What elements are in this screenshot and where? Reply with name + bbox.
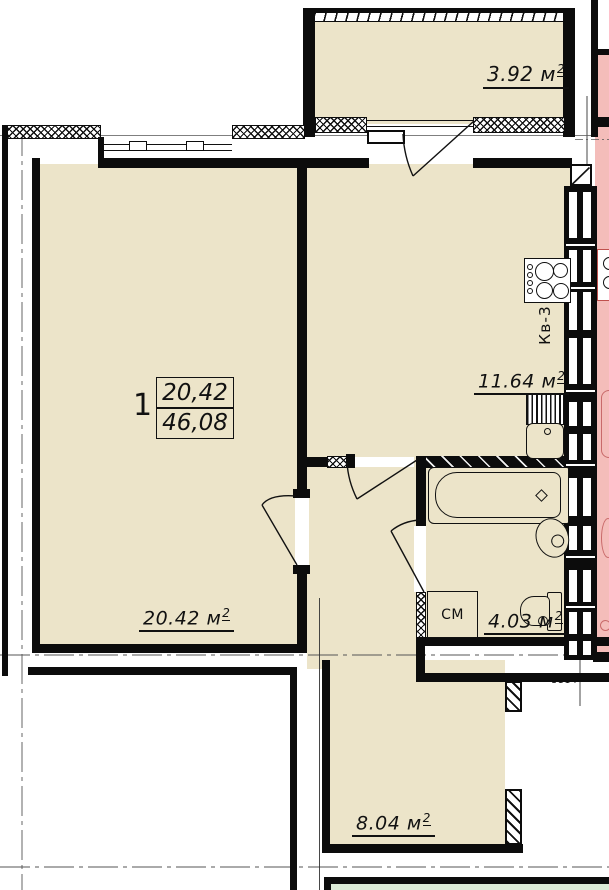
window-line [100,150,232,151]
adjacent-bathtub-hint [601,390,609,458]
door-opening [353,457,414,467]
wall-hatched [305,13,573,22]
living-area-value: 20,42 [157,378,233,409]
vent-symbol [570,164,592,186]
area-unit: м [206,607,221,629]
apartment-ref-value: Кв-3 [536,305,554,345]
total-area-value: 46,08 [157,409,233,437]
area-value: 3.92 [487,62,534,86]
kitchen-counter [526,394,564,425]
window-mullion [186,141,204,151]
door-jamb [293,489,310,498]
wall-adjacent [28,667,297,675]
area-value: 8.04 [356,812,400,834]
window-sill [367,130,405,144]
wall [297,566,307,653]
area-sup: 2 [423,811,431,826]
wall-hatched [2,125,101,139]
adjacent-toilet-hint [600,620,609,631]
area-sup: 2 [557,369,565,384]
wall-hatched [505,789,522,845]
area-value: 4.03 [488,610,532,632]
area-sup: 2 [555,609,563,624]
wall-adjacent [591,49,609,55]
living-room-area-label: 20.42 м2 [139,607,234,632]
area-sup: 2 [557,62,565,77]
kitchen-area-label: 11.64 м2 [474,370,569,395]
wall [303,8,315,137]
window-line [100,144,232,145]
area-unit: м [407,812,422,834]
wall [303,158,369,168]
wall [473,158,572,168]
wall [322,660,330,852]
door-opening [295,497,309,566]
wall-hatched [505,681,522,712]
washing-machine-label: СМ [441,607,464,623]
kitchen-sink-icon [526,423,564,459]
wall [322,844,523,853]
wall-hatched [232,125,305,139]
green-room-fill [331,884,609,890]
wall-adjacent [591,117,609,127]
bathroom-area-label: 4.03 м2 [484,610,567,635]
wall [32,644,307,653]
wall [297,158,307,497]
wall [32,158,40,653]
bathtub-icon [428,467,569,524]
wall-hatched [315,117,367,133]
balcony-top-area-label: 3.92 м2 [483,62,569,89]
adjacent-stove-hint [597,249,609,301]
wall-adjacent [324,877,331,890]
door-jamb [346,454,355,468]
area-sup: 2 [222,606,230,621]
window-mullion [129,141,147,151]
wall-hatched [473,117,565,133]
area-value: 20.42 [143,607,200,629]
adjacent-basin-hint [601,518,609,558]
loggia-area-label: 8.04 м2 [352,812,435,837]
apartment-number-value: 1 [133,388,152,423]
wall [416,456,426,526]
wall [307,457,327,467]
apartment-area-box: 20,42 46,08 [156,377,234,439]
apartment-number: 1 [133,388,152,423]
wall-hatched [416,592,426,640]
door-opening [414,526,426,592]
door-jamb [293,565,310,574]
area-unit: м [541,370,556,392]
wall [98,158,307,168]
wall-exterior-left [2,126,8,676]
area-unit: м [540,62,556,86]
floor-plan: СМ 3.92 м2 1 20,42 46,08 20.42 м2 11.64 … [0,0,609,890]
area-value: 11.64 [478,370,535,392]
wall-adjacent [324,877,609,884]
area-unit: м [539,610,554,632]
apartment-ref-label: Кв-3 [536,292,554,358]
washing-machine-box: СМ [427,591,478,638]
wall-adjacent [290,667,297,890]
adjacent-balcony-fill [598,55,609,117]
